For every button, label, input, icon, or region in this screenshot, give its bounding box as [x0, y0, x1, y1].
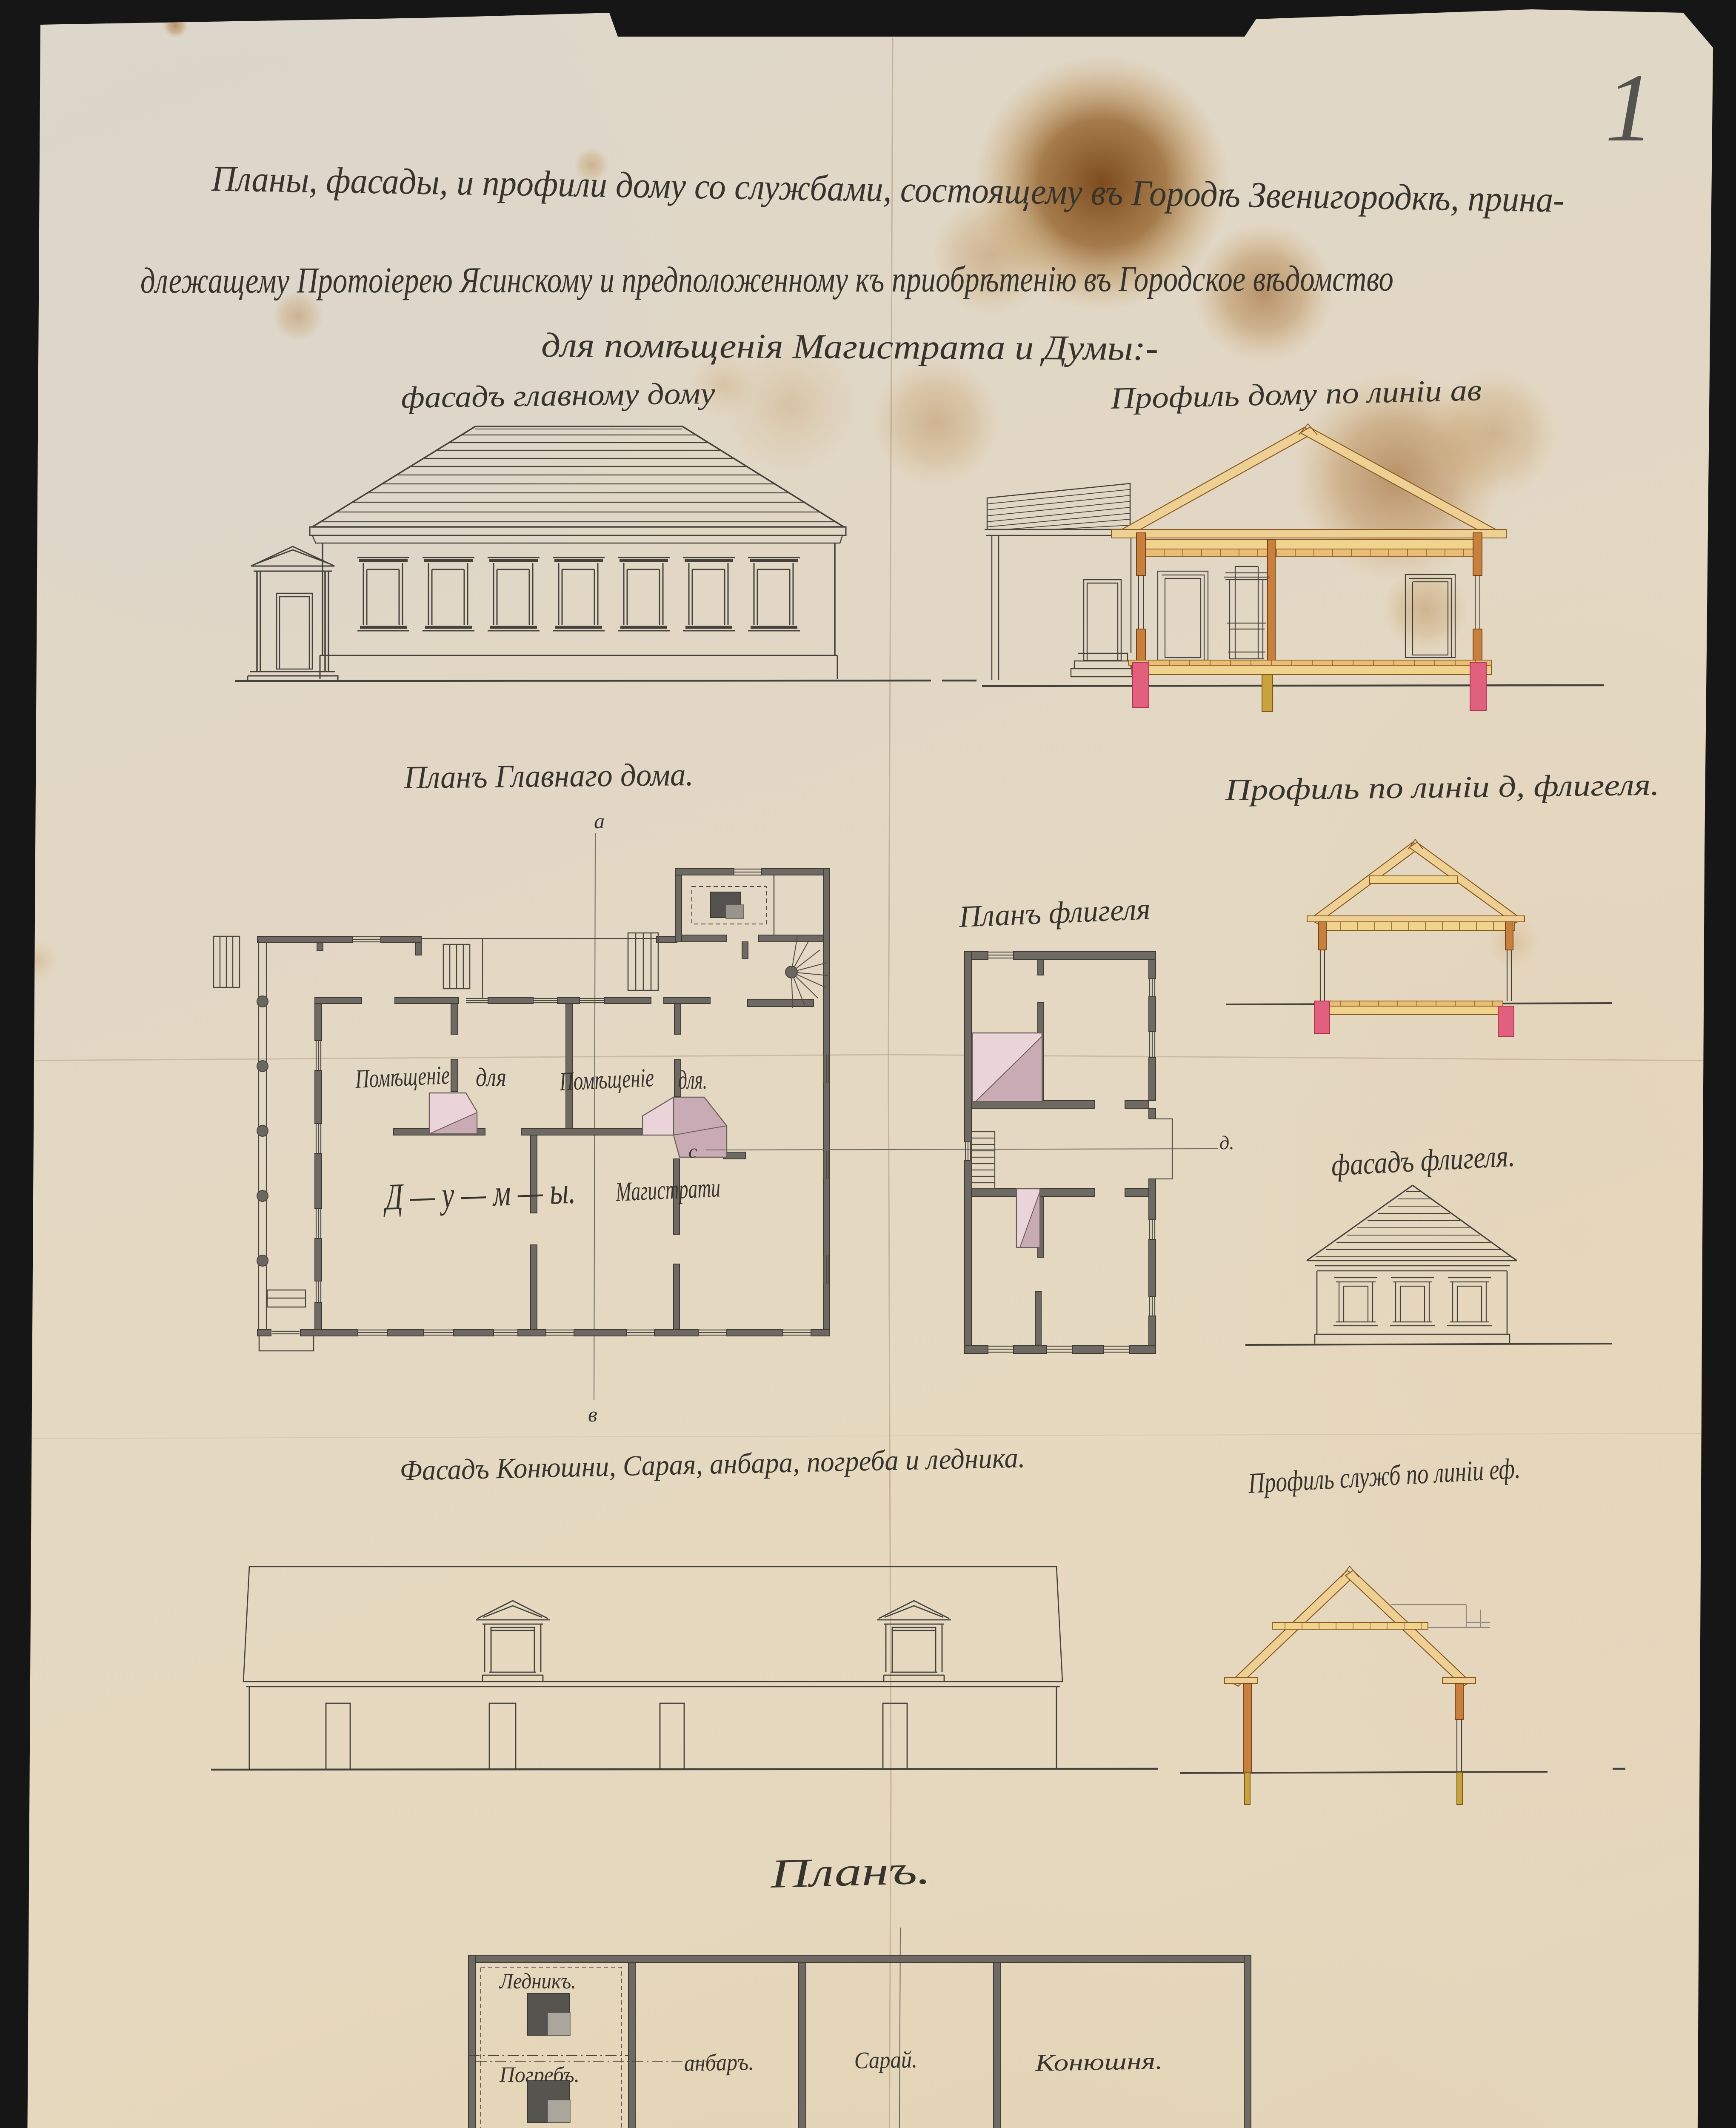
svg-text:фасадъ главному дому: фасадъ главному дому [401, 376, 715, 415]
svg-text:Планъ.: Планъ. [769, 1847, 931, 1896]
svg-text:для: для [476, 1063, 506, 1092]
svg-text:Профиль по линіи д, флигеля.: Профиль по линіи д, флигеля. [1225, 768, 1659, 807]
svg-text:анбаръ.: анбаръ. [684, 2049, 754, 2077]
svg-text:для.: для. [678, 1066, 707, 1095]
svg-text:1: 1 [1605, 53, 1654, 162]
svg-text:в: в [588, 1402, 597, 1426]
svg-text:Магистрати: Магистрати [615, 1172, 721, 1207]
svg-text:Конюшня.: Конюшня. [1034, 2048, 1163, 2077]
svg-text:для помѣщенія Магистрата и Дум: для помѣщенія Магистрата и Думы:- [541, 326, 1158, 368]
svg-text:Помѣщеніе: Помѣщеніе [354, 1061, 451, 1094]
svg-text:длежащему Протоіерею Ясинскому: длежащему Протоіерею Ясинскому и предпол… [140, 258, 1393, 301]
svg-text:Д — у — м — ы.: Д — у — м — ы. [382, 1170, 576, 1218]
svg-text:д.: д. [1219, 1132, 1234, 1153]
svg-text:Планъ Главнаго дома.: Планъ Главнаго дома. [403, 757, 694, 795]
svg-text:Помѣщеніе: Помѣщеніе [559, 1063, 655, 1096]
svg-text:с: с [688, 1140, 697, 1162]
svg-text:Ледникъ.: Ледникъ. [499, 1969, 576, 1994]
svg-text:Сарай.: Сарай. [854, 2046, 917, 2074]
svg-text:а: а [594, 809, 605, 833]
